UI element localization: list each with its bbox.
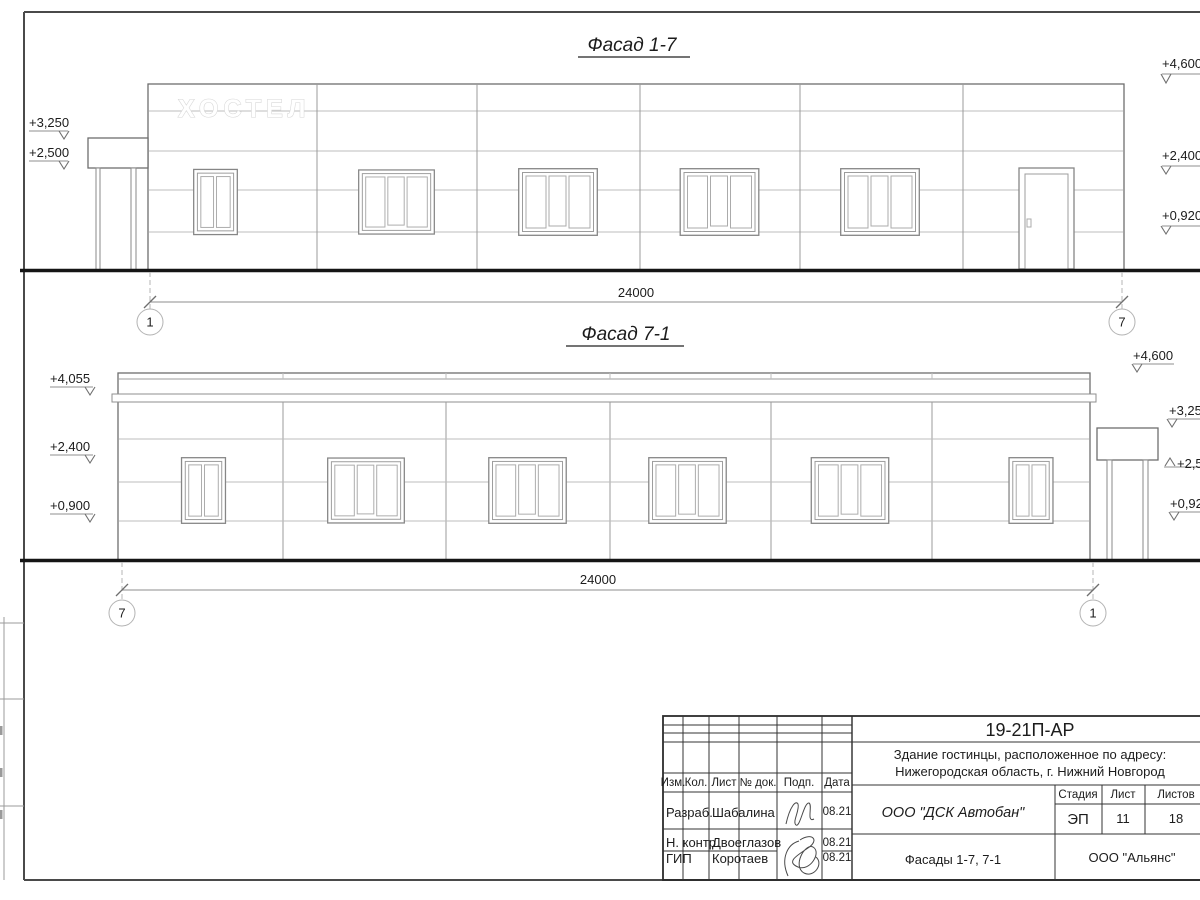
svg-text:+4,600: +4,600 [1162,56,1200,71]
col-header-doc: № док. [740,777,777,789]
drawing-title: Фасады 1-7, 7-1 [905,852,1001,867]
window [680,169,759,236]
canopy-column [131,168,136,270]
elevation-mark: +0,900 [50,498,95,522]
canopy-column [1107,460,1112,560]
col-header-list: Лист [712,777,738,789]
axis-number: 1 [1089,606,1096,621]
col-header-podp: Подп. [784,777,815,789]
dimension-value: 24000 [580,572,616,587]
facade-1-7-title: Фасад 1-7 [588,35,678,56]
elevation-mark: +2,400 [1161,148,1200,174]
company-name: ООО "ДСК Автобан" [882,805,1026,821]
stage-value: ЭП [1067,811,1089,828]
canopy-column [1143,460,1148,560]
dimension-value: 24000 [618,285,654,300]
svg-text:+4,055: +4,055 [50,371,90,386]
signature [786,803,814,825]
facade-1-7-view: Фасад 1-7 ХОСТЕЛ +3,250 [20,35,1200,271]
elevation-mark: +0,920 [1161,208,1200,234]
svg-text:+0,920: +0,920 [1170,496,1200,511]
elevation-mark: +2,500 [29,145,69,169]
margin-label-fragment [0,810,3,819]
window [811,458,888,524]
row-name: Двоеглазов [712,835,781,850]
window [649,458,726,524]
row-role: ГИП [666,851,692,866]
row-date: 08.21 [823,806,852,818]
row-date: 08.21 [823,852,852,864]
col-header-kol: Кол. [685,777,708,789]
fascia-band [112,394,1096,402]
svg-text:+0,920: +0,920 [1162,208,1200,223]
row-name: Шабалина [712,805,776,820]
window [841,169,920,236]
svg-text:+2,400: +2,400 [50,439,90,454]
door-handle [1027,219,1031,227]
row-date: 08.21 [823,837,852,849]
axis-number: 7 [1118,315,1125,330]
document-number: 19-21П-АР [986,720,1075,740]
row-name: Коротаев [712,851,768,866]
window [194,169,238,234]
window [489,458,566,524]
elevation-mark: +4,055 [50,371,95,395]
project-address-line2: Нижегородская область, г. Нижний Новгоро… [895,764,1165,779]
design-firm: ООО "Альянс" [1089,850,1176,865]
facade-7-1-title: Фасад 7-1 [582,324,671,345]
elevation-mark: +3,250 [29,115,69,139]
window [328,458,405,523]
margin-label-fragment [0,726,3,735]
window [1009,458,1053,524]
sheet-number: 11 [1116,811,1130,826]
axis-number: 1 [146,315,153,330]
elevation-mark: +0,920 [1169,496,1200,520]
col-header-data: Дата [824,777,850,789]
facade-7-1-view: Фасад 7-1 +4,055 [20,324,1200,561]
svg-text:+3,250: +3,250 [29,115,69,130]
dimension-7-1: 24000 7 1 [109,562,1106,626]
svg-text:+4,600: +4,600 [1133,348,1173,363]
svg-text:+2,500: +2,500 [29,145,69,160]
entrance-canopy-right [1097,428,1158,460]
stage-label: Стадия [1058,789,1097,801]
project-address-line1: Здание гостинцы, расположенное по адресу… [894,747,1166,762]
row-role: Разраб. [666,805,713,820]
elevation-mark: +3,250 [1167,403,1200,427]
svg-text:+0,900: +0,900 [50,498,90,513]
sheets-label: Листов [1157,789,1194,801]
hostel-sign: ХОСТЕЛ [178,95,310,123]
elevation-mark: +2,400 [50,439,95,463]
window [359,170,435,234]
sheet-label: Лист [1111,789,1137,801]
canopy-column [96,168,100,270]
svg-text:+3,250: +3,250 [1169,403,1200,418]
signature [785,837,819,876]
title-block: 19-21П-АР Здание гостинцы, расположенное… [661,716,1200,880]
col-header-izm: Изм. [661,777,686,789]
elevation-mark: +2,500 [1164,456,1200,471]
svg-text:+2,400: +2,400 [1162,148,1200,163]
entrance-door [1019,168,1074,269]
drawing-sheet: Фасад 1-7 ХОСТЕЛ +3,250 [0,0,1200,900]
elevation-mark: +4,600 [1161,56,1200,83]
window [519,169,598,236]
svg-text:+2,500: +2,500 [1177,456,1200,471]
sheets-total: 18 [1169,811,1183,826]
entrance-canopy-left [88,138,148,168]
elevation-mark: +4,600 [1132,348,1174,372]
window [182,458,226,524]
axis-number: 7 [118,606,125,621]
margin-label-fragment [0,768,3,777]
